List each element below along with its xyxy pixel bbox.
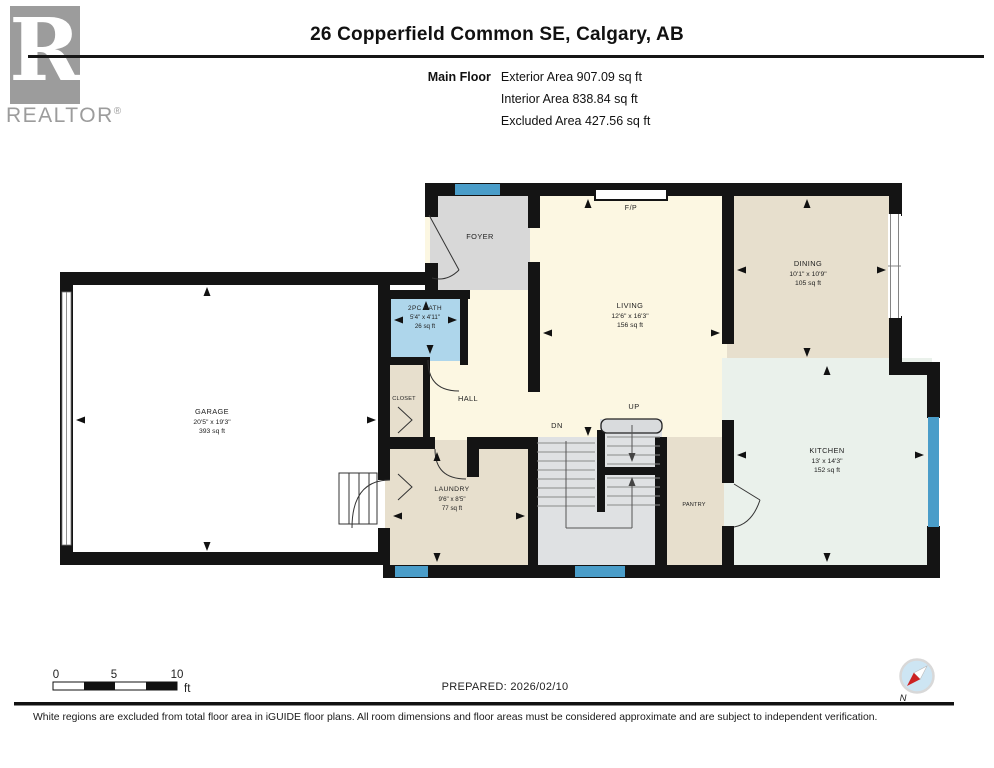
label-laundry: LAUNDRY xyxy=(434,486,469,493)
garage-door xyxy=(62,292,71,545)
dims-bath: 5'4" x 4'11" xyxy=(410,314,440,321)
area-dining: 105 sq ft xyxy=(795,280,821,287)
scale-unit: ft xyxy=(184,683,191,695)
scale-tick-5: 5 xyxy=(111,669,117,681)
label-foyer: FOYER xyxy=(466,232,493,241)
compass-icon: N xyxy=(900,660,934,705)
scale-bar: 0 5 10 ft xyxy=(53,669,191,695)
dims-laundry: 9'6" x 8'5" xyxy=(438,496,465,503)
title-divider xyxy=(28,55,984,58)
window-foyer xyxy=(455,184,500,195)
dims-kitchen: 13' x 14'3" xyxy=(811,458,843,465)
area-living: 156 sq ft xyxy=(617,322,643,329)
scale-tick-10: 10 xyxy=(171,669,184,681)
room-fills xyxy=(73,190,932,568)
fireplace xyxy=(595,189,667,200)
realtor-logo-wordmark: REALTOR® xyxy=(6,104,123,128)
area-bath: 26 sq ft xyxy=(415,323,436,330)
realtor-logo-monogram: R xyxy=(9,8,80,94)
label-up: UP xyxy=(628,402,639,411)
floorplan-page: R REALTOR® 26 Copperfield Common SE, Cal… xyxy=(0,0,994,768)
label-down: DN xyxy=(551,421,563,430)
window-dining xyxy=(888,214,901,318)
dims-garage: 20'5" x 19'3" xyxy=(193,419,231,426)
window-laundry xyxy=(395,566,428,577)
label-hall: HALL xyxy=(458,394,478,403)
label-fireplace: F/P xyxy=(625,205,637,212)
dims-living: 12'6" x 16'3" xyxy=(611,313,649,320)
label-living: LIVING xyxy=(617,301,644,310)
label-dining: DINING xyxy=(794,259,822,268)
label-pantry: PANTRY xyxy=(682,502,705,508)
label-closet: CLOSET xyxy=(392,396,416,402)
scale-tick-0: 0 xyxy=(53,669,59,681)
window-kitchen xyxy=(928,417,939,527)
footer-divider xyxy=(14,702,954,706)
area-kitchen: 152 sq ft xyxy=(814,467,840,474)
area-garage: 393 sq ft xyxy=(199,428,225,435)
registered-mark: ® xyxy=(114,106,123,117)
dims-dining: 10'1" x 10'9" xyxy=(789,271,827,278)
window-stairwell xyxy=(575,566,625,577)
label-kitchen: KITCHEN xyxy=(809,446,844,455)
floorplan-drawing: FOYER HALL CLOSET PANTRY 2PC BATH 5'4" x… xyxy=(0,0,994,768)
prepared-date: PREPARED: 2026/02/10 xyxy=(442,681,569,693)
area-laundry: 77 sq ft xyxy=(442,505,463,512)
label-garage: GARAGE xyxy=(195,407,229,416)
label-bath: 2PC BATH xyxy=(408,305,442,312)
